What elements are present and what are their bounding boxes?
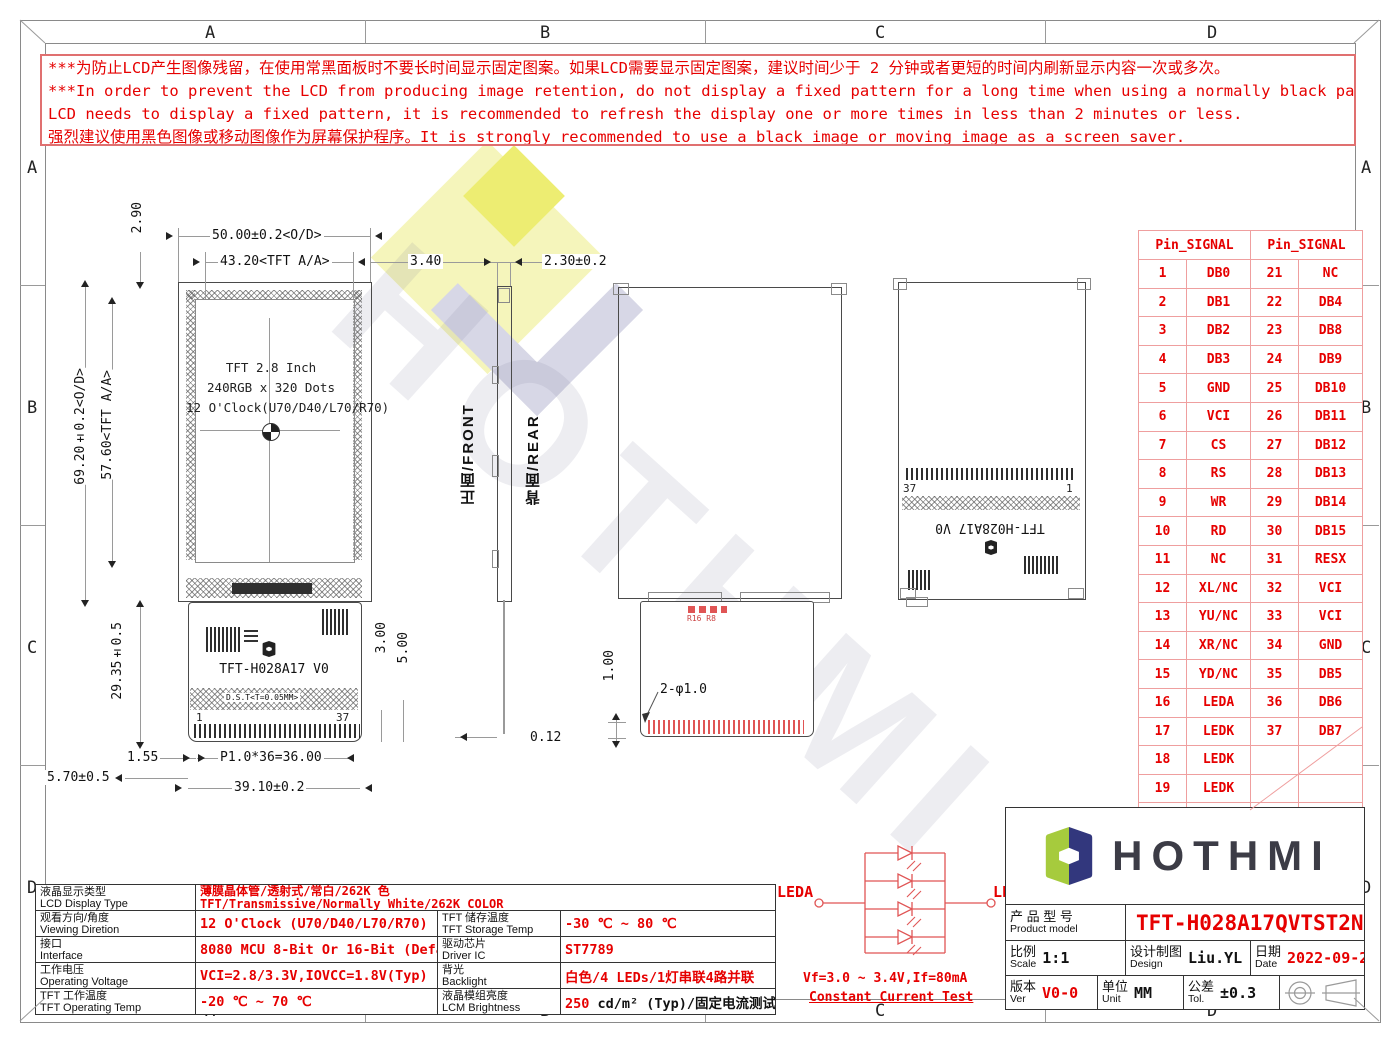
spec-value-cell: ST7789	[561, 937, 776, 963]
pin-number-cell: 3	[1139, 317, 1187, 346]
dim-aa-height: 57.60<TFT A/A>	[98, 370, 117, 480]
spec-value-cell: -20 ℃ ~ 70 ℃	[196, 989, 438, 1015]
front-view-text: TFT 2.8 Inch 240RGB x 320 Dots 12 O'Cloc…	[186, 358, 356, 418]
pin-signal-table: Pin_SIGNAL Pin_SIGNAL 1DB021NC2DB122DB43…	[1138, 230, 1363, 832]
product-label-en: Product model	[1010, 923, 1078, 936]
pin-signal-cell: DB7	[1299, 717, 1363, 746]
dim-0-12: 0.12	[528, 730, 563, 745]
spec-value-cell: 薄膜晶体管/透射式/常白/262K 色TFT/Transmissive/Norm…	[196, 885, 776, 911]
pin-number-cell: 14	[1139, 631, 1187, 660]
rear-pin-37: 37	[903, 482, 916, 495]
hothmi-logo-icon	[1038, 827, 1100, 885]
zone-right-a: A	[1361, 158, 1371, 178]
pin-signal-cell: LEDK	[1187, 717, 1251, 746]
zone-top-a: A	[205, 23, 215, 43]
pin-number-cell: 10	[1139, 517, 1187, 546]
pin-number-cell: 9	[1139, 488, 1187, 517]
front-fpc-part-number: TFT-H028A17 V0	[198, 662, 350, 677]
unit-label-en: Unit	[1102, 993, 1128, 1006]
spec-label-cell: 观看方向/角度Viewing Diretion	[36, 911, 196, 937]
title-block: HOTHMI 产 品 型 号 Product model TFT-H028A17…	[1005, 807, 1365, 1010]
pin-table-row: 11NC31RESX	[1139, 545, 1363, 574]
pin-number-cell: 15	[1139, 660, 1187, 689]
pin-signal-cell: LEDK	[1187, 774, 1251, 803]
pin-table-row: 5GND25DB10	[1139, 374, 1363, 403]
spec-label-cell: 接口Interface	[36, 937, 196, 963]
pin-number-cell	[1251, 746, 1299, 775]
pin-signal-cell: NC	[1299, 260, 1363, 289]
pin-signal-cell: VCI	[1299, 574, 1363, 603]
pin-signal-cell: LEDA	[1187, 688, 1251, 717]
pin-table-row: 7CS27DB12	[1139, 431, 1363, 460]
spec-label-cell: 液晶模组亮度LCM Brightness	[438, 989, 561, 1015]
dim-od-width: 50.00±0.2<O/D>	[210, 228, 324, 243]
pin-table-header-right: Pin_SIGNAL	[1251, 231, 1363, 260]
pin-table-row: 1DB021NC	[1139, 260, 1363, 289]
pin-number-cell: 32	[1251, 574, 1299, 603]
tol-label-en: Tol.	[1188, 993, 1214, 1006]
product-label-cn: 产 品 型 号	[1010, 910, 1078, 923]
warning-line-4: 强烈建议使用黑色图像或移动图像作为屏幕保护程序。It is strongly r…	[48, 126, 1348, 146]
pin-table-row: 9WR29DB14	[1139, 488, 1363, 517]
pin-signal-cell: CS	[1187, 431, 1251, 460]
design-value: Liu.YL	[1188, 949, 1242, 967]
spec-label-cell: 液晶显示类型LCD Display Type	[36, 885, 196, 911]
pin-signal-cell: XR/NC	[1187, 631, 1251, 660]
pin-signal-cell: DB1	[1187, 288, 1251, 317]
dim-od-height: 69.20±0.2<O/D>	[71, 368, 90, 485]
pin-signal-cell: DB10	[1299, 374, 1363, 403]
pin-number-cell: 24	[1251, 345, 1299, 374]
dim-5-00: 5.00	[394, 632, 413, 663]
spec-value-cell: 12 O'Clock (U70/D40/L70/R70)	[196, 911, 438, 937]
spec-label-cell: TFT 工作温度TFT Operating Temp	[36, 989, 196, 1015]
spec-table-row: 工作电压Operating VoltageVCI=2.8/3.3V,IOVCC=…	[36, 963, 776, 989]
pin-number-cell: 19	[1139, 774, 1187, 803]
ver-label-cn: 版本	[1010, 980, 1036, 993]
zone-left-c: C	[27, 638, 37, 658]
pin-number-cell: 11	[1139, 545, 1187, 574]
dim-1-55: 1.55	[125, 750, 160, 765]
pin-signal-cell: DB13	[1299, 460, 1363, 489]
led-spec: Vf=3.0 ~ 3.4V,If=80mA	[803, 971, 1015, 986]
spec-table-row: 接口Interface8080 MCU 8-Bit Or 16-Bit (Def…	[36, 937, 776, 963]
warning-line-2: ***In order to prevent the LCD from prod…	[48, 80, 1348, 103]
pin-number-cell: 25	[1251, 374, 1299, 403]
product-model-value: TFT-H028A17QVTST2N37	[1136, 911, 1364, 935]
pin-table-row: 12XL/NC32VCI	[1139, 574, 1363, 603]
pin-table-row: 14XR/NC34GND	[1139, 631, 1363, 660]
front-pin-1: 1	[196, 711, 203, 724]
pin-signal-cell: DB12	[1299, 431, 1363, 460]
pin-number-cell: 17	[1139, 717, 1187, 746]
pin-signal-cell: NC	[1187, 545, 1251, 574]
dim-3-40: 3.40	[408, 254, 443, 269]
pin-number-cell: 8	[1139, 460, 1187, 489]
pin-signal-cell: DB8	[1299, 317, 1363, 346]
pin-number-cell: 22	[1251, 288, 1299, 317]
center-mark	[262, 423, 280, 441]
pin-number-cell: 34	[1251, 631, 1299, 660]
pin-signal-cell	[1299, 774, 1363, 803]
pin-signal-cell: DB15	[1299, 517, 1363, 546]
dim-2-90: 2.90	[128, 202, 147, 233]
zone-left-a: A	[27, 158, 37, 178]
rear-fpc-part-number: TFT-H028A17 V0	[915, 520, 1065, 535]
rear-view-label: 背面/REAR	[523, 395, 544, 505]
design-label-cn: 设计制图	[1130, 945, 1182, 958]
warning-line-1: ***为防止LCD产生图像残留，在使用常黑面板时不要长时间显示固定图案。如果LC…	[48, 57, 1348, 80]
pin-number-cell: 16	[1139, 688, 1187, 717]
led-note: Constant Current Test	[809, 990, 1015, 1005]
dim-pitch: P1.0*36=36.00	[218, 750, 324, 765]
pin-table-header-left: Pin_SIGNAL	[1139, 231, 1251, 260]
side-view-outline	[497, 286, 512, 602]
spec-value-cell: 250 cd/m² (Typ)/固定电流测试	[561, 989, 776, 1015]
pin-number-cell: 5	[1139, 374, 1187, 403]
dim-thickness: 2.30±0.2	[542, 254, 609, 269]
rear-fpc-resistors-label: R16 R8	[687, 614, 716, 623]
pin-table-row: 6VCI26DB11	[1139, 402, 1363, 431]
spec-label-cell: 驱动芯片Driver IC	[438, 937, 561, 963]
design-label-en: Design	[1130, 958, 1182, 971]
pin-table-row: 18LEDK	[1139, 746, 1363, 775]
pin-signal-cell: RS	[1187, 460, 1251, 489]
pin-number-cell: 33	[1251, 603, 1299, 632]
scale-value: 1:1	[1042, 949, 1069, 967]
zone-top-d: D	[1207, 23, 1217, 43]
pin-table-row: 17LEDK37DB7	[1139, 717, 1363, 746]
pin-number-cell: 6	[1139, 402, 1187, 431]
pin-number-cell: 2	[1139, 288, 1187, 317]
pin-number-cell: 29	[1251, 488, 1299, 517]
pin-number-cell: 30	[1251, 517, 1299, 546]
pin-table-row: 8RS28DB13	[1139, 460, 1363, 489]
front-pin-37: 37	[336, 711, 349, 724]
pin-signal-cell	[1299, 746, 1363, 775]
spec-label-cell: 工作电压Operating Voltage	[36, 963, 196, 989]
pin-number-cell: 23	[1251, 317, 1299, 346]
pin-number-cell: 18	[1139, 746, 1187, 775]
spec-table-row: TFT 工作温度TFT Operating Temp-20 ℃ ~ 70 ℃液晶…	[36, 989, 776, 1015]
spec-value-cell: 白色/4 LEDs/1灯串联4路并联	[561, 963, 776, 989]
dim-fpc-width: 39.10±0.2	[232, 780, 306, 795]
rear-open-view-outline	[618, 287, 842, 599]
pin-signal-cell: YD/NC	[1187, 660, 1251, 689]
pin-number-cell: 28	[1251, 460, 1299, 489]
pin-number-cell: 26	[1251, 402, 1299, 431]
pin-signal-cell: DB2	[1187, 317, 1251, 346]
pin-signal-cell: DB11	[1299, 402, 1363, 431]
ver-value: V0-0	[1042, 984, 1078, 1002]
unit-label-cn: 单位	[1102, 980, 1128, 993]
fpc-dst-label: D.S.T<T=0.05MM>	[224, 693, 300, 702]
pin-number-cell: 37	[1251, 717, 1299, 746]
rear-fpc	[640, 601, 814, 737]
pin-table-row: 10RD30DB15	[1139, 517, 1363, 546]
tol-label-cn: 公差	[1188, 980, 1214, 993]
pin-number-cell: 7	[1139, 431, 1187, 460]
spec-value-cell: VCI=2.8/3.3V,IOVCC=1.8V(Typ)	[196, 963, 438, 989]
scale-row: 比例 Scale 1:1 设计制图 Design Liu.YL 日期 Date …	[1006, 940, 1364, 975]
led-circuit-diagram	[795, 845, 1015, 963]
front-view-label: 正面/FRONT	[458, 395, 479, 505]
zone-left-b: B	[27, 398, 37, 418]
dim-hole: 2-φ1.0	[658, 682, 709, 697]
pin-number-cell	[1251, 774, 1299, 803]
spec-label-cell: TFT 储存温度TFT Storage Temp	[438, 911, 561, 937]
pin-table-row: 2DB122DB4	[1139, 288, 1363, 317]
spec-table-row: 液晶显示类型LCD Display Type薄膜晶体管/透射式/常白/262K …	[36, 885, 776, 911]
pin-table-row: 3DB223DB8	[1139, 317, 1363, 346]
hothmi-logo-text: HOTHMI	[1112, 832, 1332, 880]
dim-aa-width: 43.20<TFT A/A>	[218, 254, 332, 269]
version-row: 版本 Ver V0-0 单位 Unit MM 公差 Tol. ±0.3	[1006, 975, 1364, 1010]
dim-fpc-height: 29.35±0.5	[108, 622, 127, 700]
backlight-circuit: LEDA LEDK Vf=3.0 ~ 3.4V,If=80mA Constant…	[795, 845, 1015, 1005]
pin-table-row: 16LEDA36DB6	[1139, 688, 1363, 717]
product-row: 产 品 型 号 Product model TFT-H028A17QVTST2N…	[1006, 904, 1364, 940]
pin-signal-cell: DB0	[1187, 260, 1251, 289]
spec-table-row: 观看方向/角度Viewing Diretion12 O'Clock (U70/D…	[36, 911, 776, 937]
zone-top-b: B	[540, 23, 550, 43]
projection-symbol-icon	[1284, 977, 1360, 1009]
led-anode-label: LEDA	[777, 883, 813, 901]
pin-signal-cell: RESX	[1299, 545, 1363, 574]
dim-1-00: 1.00	[600, 650, 619, 681]
pin-signal-cell: DB4	[1299, 288, 1363, 317]
spec-value-cell: -30 ℃ ~ 80 ℃	[561, 911, 776, 937]
pin-number-cell: 1	[1139, 260, 1187, 289]
zone-top-c: C	[875, 23, 885, 43]
pin-signal-cell: WR	[1187, 488, 1251, 517]
fpc-logo-icon	[260, 641, 278, 657]
pin-signal-cell: XL/NC	[1187, 574, 1251, 603]
pin-number-cell: 4	[1139, 345, 1187, 374]
pin-signal-cell: DB14	[1299, 488, 1363, 517]
pin-signal-cell: VCI	[1187, 402, 1251, 431]
pin-signal-cell: LEDK	[1187, 746, 1251, 775]
dim-3-00: 3.00	[372, 622, 391, 653]
pin-table-row: 15YD/NC35DB5	[1139, 660, 1363, 689]
pin-signal-cell: DB9	[1299, 345, 1363, 374]
rear-pin-1: 1	[1066, 482, 1073, 495]
pin-number-cell: 27	[1251, 431, 1299, 460]
pin-number-cell: 31	[1251, 545, 1299, 574]
pin-signal-cell: VCI	[1299, 603, 1363, 632]
scale-label-en: Scale	[1010, 958, 1036, 971]
pin-signal-cell: YU/NC	[1187, 603, 1251, 632]
drawing-sheet: HOTHMI A B C D A B C D A B C D A B C D *…	[0, 0, 1400, 1042]
pin-table-row: 4DB324DB9	[1139, 345, 1363, 374]
dim-5-70: 5.70±0.5	[45, 770, 112, 785]
scale-label-cn: 比例	[1010, 945, 1036, 958]
retention-warning: ***为防止LCD产生图像残留，在使用常黑面板时不要长时间显示固定图案。如果LC…	[40, 54, 1356, 146]
pin-signal-cell: DB5	[1299, 660, 1363, 689]
pin-number-cell: 13	[1139, 603, 1187, 632]
tol-value: ±0.3	[1220, 984, 1256, 1002]
pin-number-cell: 21	[1251, 260, 1299, 289]
pin-table-row: 19LEDK	[1139, 774, 1363, 803]
logo-row: HOTHMI	[1006, 808, 1364, 904]
pin-signal-cell: DB6	[1299, 688, 1363, 717]
pin-signal-cell: GND	[1187, 374, 1251, 403]
spec-label-cell: 背光Backlight	[438, 963, 561, 989]
pin-number-cell: 12	[1139, 574, 1187, 603]
pin-number-cell: 36	[1251, 688, 1299, 717]
pin-signal-cell: RD	[1187, 517, 1251, 546]
pin-signal-cell: GND	[1299, 631, 1363, 660]
unit-value: MM	[1134, 984, 1152, 1002]
ver-label-en: Ver	[1010, 993, 1036, 1006]
date-label-cn: 日期	[1255, 945, 1281, 958]
pin-number-cell: 35	[1251, 660, 1299, 689]
rear-logo-icon	[983, 540, 999, 555]
warning-line-3: LCD needs to display a fixed pattern, it…	[48, 103, 1348, 126]
pin-table-row: 13YU/NC33VCI	[1139, 603, 1363, 632]
spec-table: 液晶显示类型LCD Display Type薄膜晶体管/透射式/常白/262K …	[35, 884, 776, 1015]
date-value: 2022-09-27	[1287, 949, 1364, 967]
pin-signal-cell: DB3	[1187, 345, 1251, 374]
spec-value-cell: 8080 MCU 8-Bit Or 16-Bit (Default)	[196, 937, 438, 963]
date-label-en: Date	[1255, 958, 1281, 971]
